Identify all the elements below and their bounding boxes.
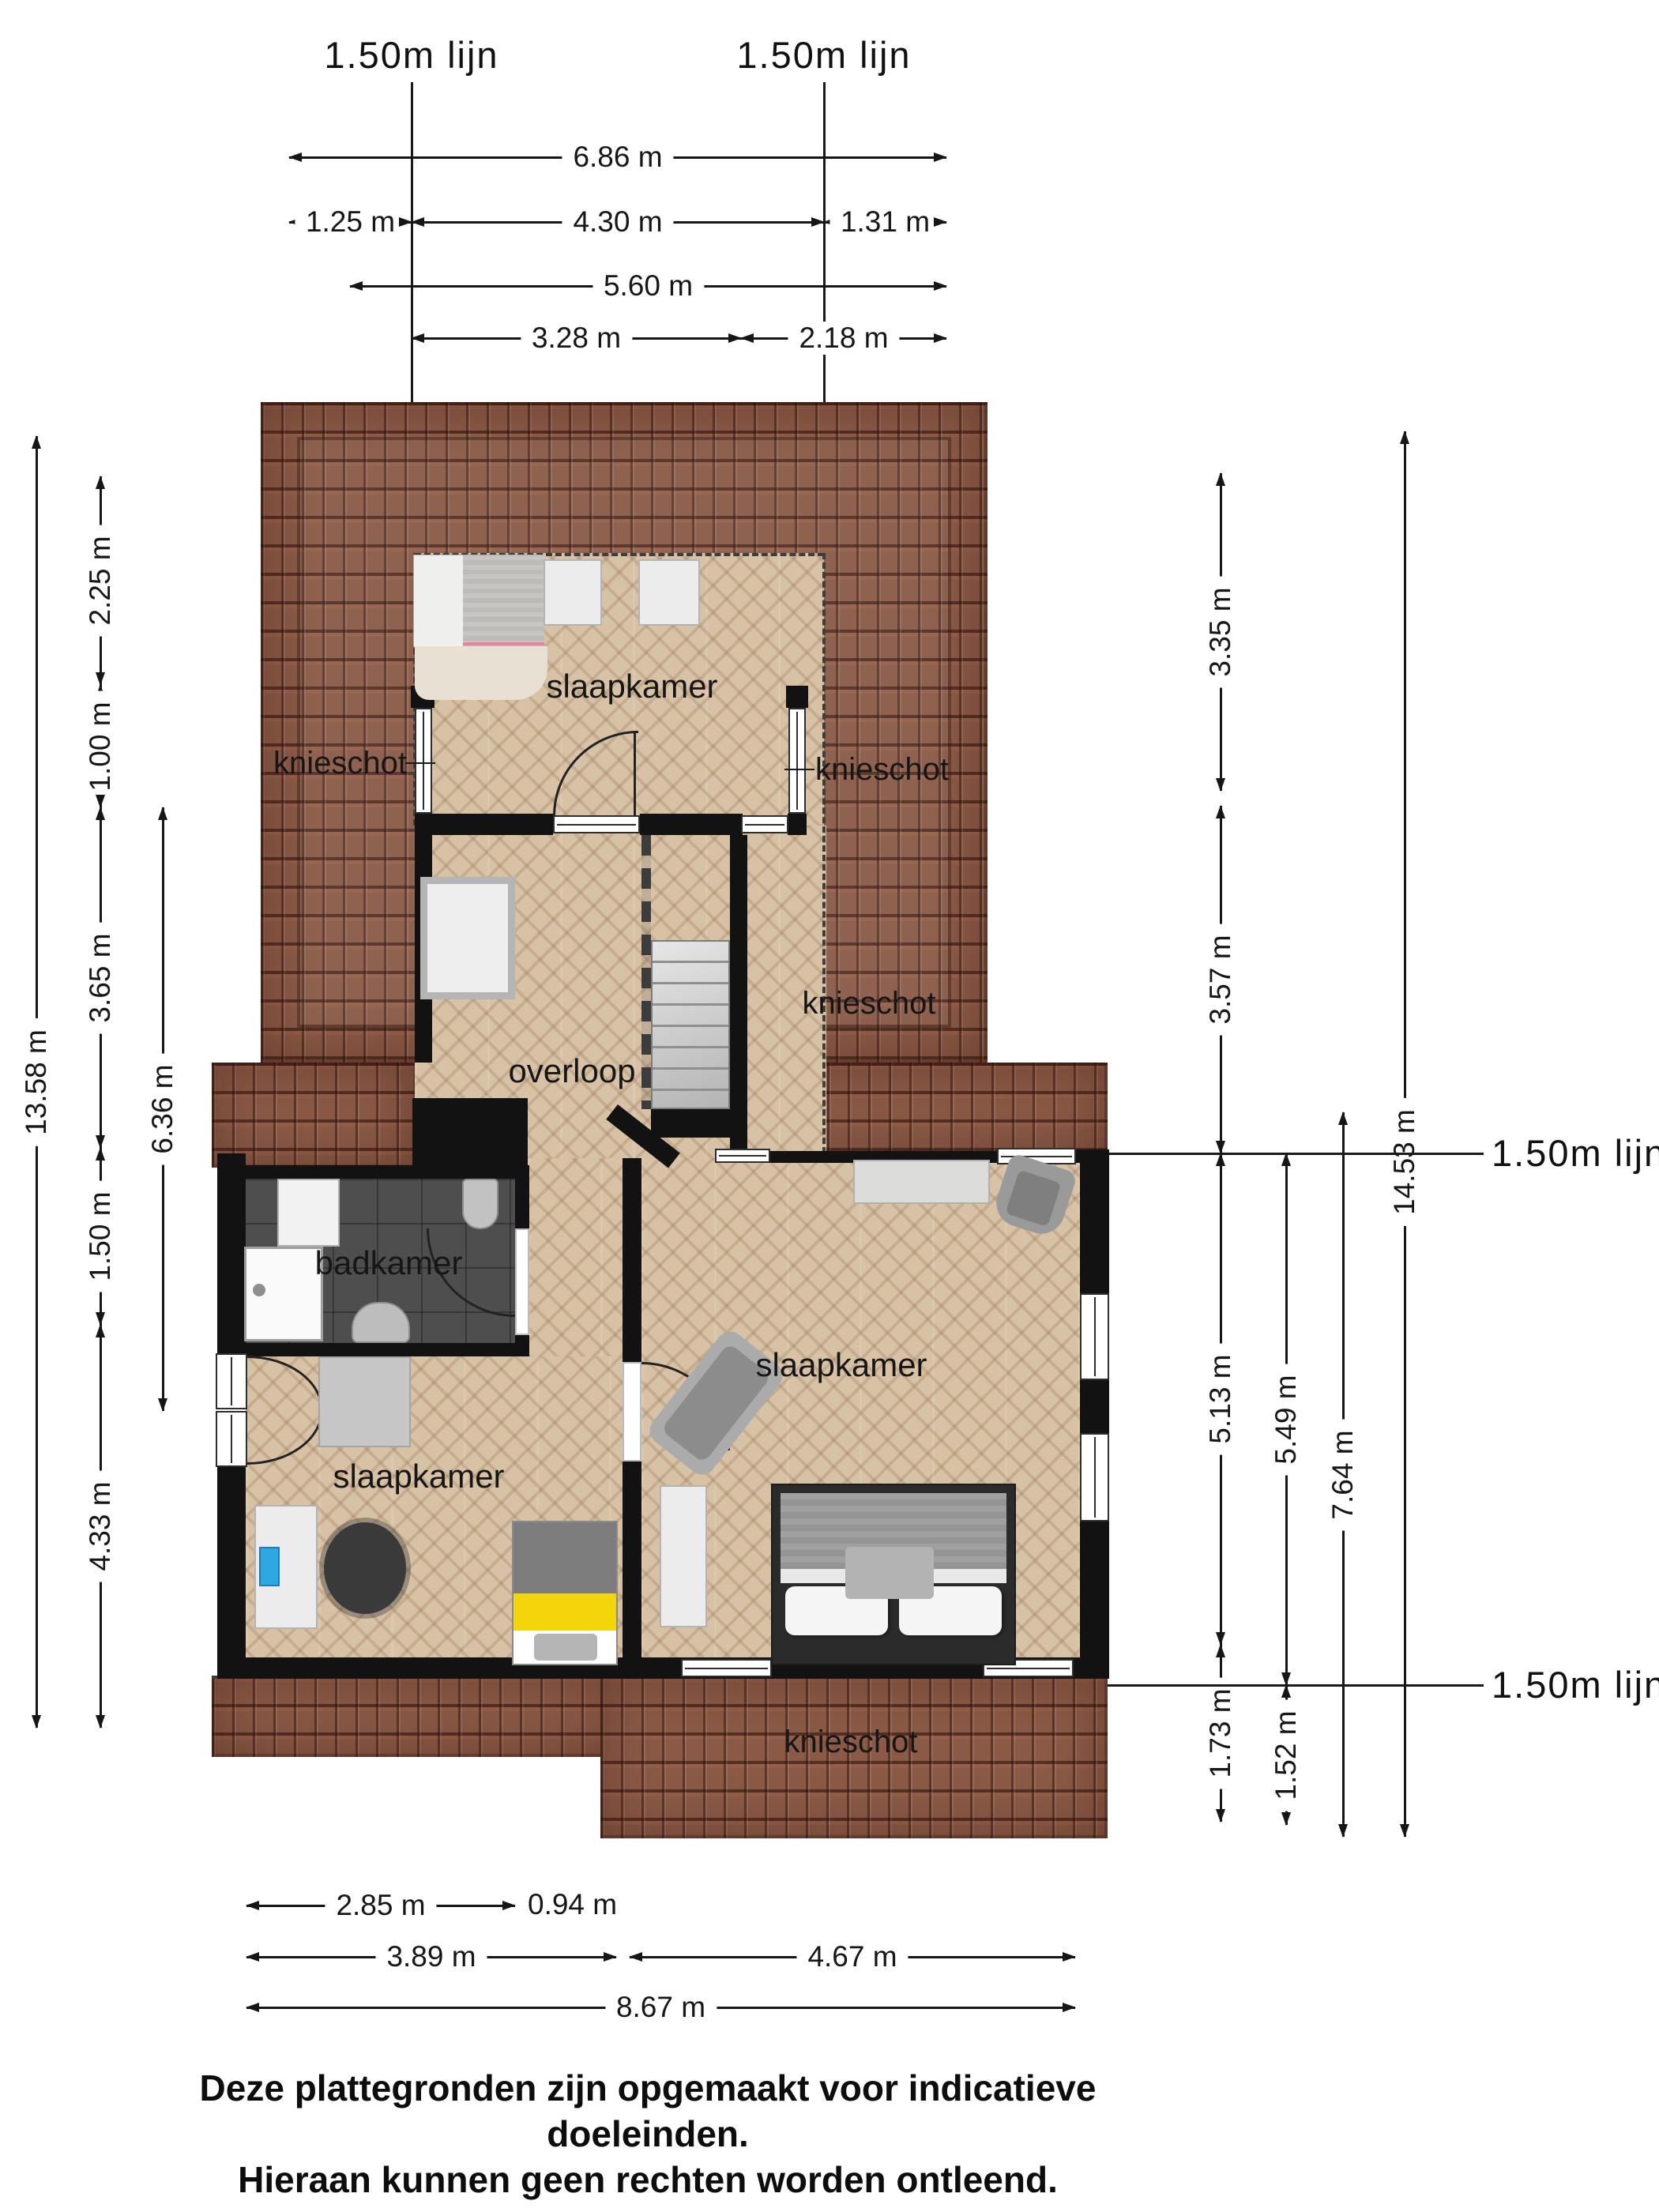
dim-label: 1.25 m <box>295 205 406 239</box>
roof-bottom-left <box>212 1676 621 1757</box>
window <box>788 708 806 814</box>
dim-label: 1.00 m <box>84 690 117 802</box>
dim-label: 6.36 m <box>146 1053 179 1164</box>
wall-bath-top <box>244 1165 515 1179</box>
dim-left-150: 1.50 m <box>100 1148 102 1325</box>
wall-stair-bottom <box>651 1109 747 1138</box>
bathroom-cabinet <box>277 1179 340 1247</box>
toilet <box>462 1179 498 1229</box>
wall-mid-upper <box>623 1158 641 1362</box>
bed-double <box>771 1484 1016 1665</box>
door-leaf <box>634 731 636 816</box>
dim-right-173: 1.73 m <box>1220 1645 1222 1822</box>
bed-cushion <box>845 1547 934 1599</box>
dim-label: 4.33 m <box>84 1470 117 1582</box>
bed-mattress <box>463 555 544 647</box>
sideboard <box>853 1160 990 1204</box>
dim-label: 1.52 m <box>1270 1699 1303 1811</box>
laptop <box>259 1547 280 1586</box>
dim-label: 3.35 m <box>1204 576 1237 687</box>
dim-label: 13.58 m <box>20 1018 53 1146</box>
dim-label: 14.53 m <box>1388 1098 1421 1226</box>
wall-bath-right-upper <box>515 1165 529 1228</box>
lijn-label-top-right: 1.50m lijn <box>666 33 982 77</box>
dim-right-total: 14.53 m <box>1404 431 1406 1837</box>
dresser <box>544 559 602 626</box>
leader-line <box>405 762 435 764</box>
dim-right-152: 1.52 m <box>1285 1685 1288 1825</box>
wall <box>788 814 807 835</box>
disclaimer-line-1: Deze plattegronden zijn opgemaakt voor i… <box>95 2065 1201 2157</box>
dim-label: 3.89 m <box>375 1940 487 1973</box>
label-kneewall-mid: knieschot <box>743 986 995 1021</box>
dim-label: 8.67 m <box>605 1991 717 2024</box>
dim-top-right: 1.31 m <box>824 221 946 224</box>
dim-label: 2.18 m <box>788 322 899 355</box>
dim-bottom-285: 2.85 m <box>246 1905 515 1907</box>
dim-label: 3.57 m <box>1204 924 1237 1035</box>
window <box>1080 1433 1109 1522</box>
dim-bottom-total: 8.67 m <box>246 2007 1075 2009</box>
wall-mid-lower <box>623 1461 641 1679</box>
disclaimer-line-2: Hieraan kunnen geen rechten worden ontle… <box>95 2157 1201 2203</box>
door-bathroom <box>515 1228 529 1335</box>
dim-bottom-094: 0.94 m <box>528 1888 617 1921</box>
dim-top-560: 5.60 m <box>350 285 946 288</box>
lijn-line-right-lower <box>1108 1684 1484 1687</box>
dresser <box>318 1356 411 1447</box>
wall <box>415 814 553 835</box>
window <box>681 1659 772 1677</box>
leader-line <box>784 769 814 770</box>
window <box>415 708 432 814</box>
wall <box>640 814 743 835</box>
dresser <box>638 559 700 626</box>
door-threshold <box>553 815 640 833</box>
label-kneewall-top-right: knieschot <box>815 752 949 788</box>
dim-right-357: 3.57 m <box>1220 806 1222 1153</box>
shower-drain <box>253 1284 265 1296</box>
door-corridor <box>623 1362 641 1461</box>
dim-label: 4.30 m <box>562 205 673 239</box>
dim-left-433: 4.33 m <box>100 1325 102 1728</box>
dim-top-mid: 4.30 m <box>412 221 824 224</box>
lijn-label-top-left: 1.50m lijn <box>254 33 570 77</box>
wall-exterior-right <box>1080 1158 1109 1679</box>
bed-pillow-strip <box>414 555 463 647</box>
window <box>741 815 788 833</box>
dim-top-218: 2.18 m <box>741 337 946 340</box>
dim-label: 5.49 m <box>1270 1364 1303 1475</box>
office-chair <box>324 1522 406 1614</box>
dim-top-total: 6.86 m <box>289 156 946 159</box>
dashed-right-boundary <box>822 553 826 1153</box>
cabinet <box>420 877 515 999</box>
wall-cap <box>1076 1149 1109 1163</box>
window <box>715 1149 770 1163</box>
bed-yellow-stripe <box>513 1593 616 1631</box>
dim-label: 3.65 m <box>84 922 117 1033</box>
dim-label: 1.73 m <box>1204 1677 1237 1789</box>
roof-left-bump <box>212 1063 416 1168</box>
dim-left-total: 13.58 m <box>36 436 38 1728</box>
dim-left-100: 1.00 m <box>100 685 102 807</box>
label-bathroom: badkamer <box>262 1244 515 1282</box>
label-landing: overloop <box>446 1052 698 1090</box>
dim-label: 1.50 m <box>84 1180 117 1292</box>
lijn-label-right-upper: 1.50m lijn <box>1492 1131 1659 1175</box>
label-bedroom-top: slaapkamer <box>506 668 758 705</box>
bed-top <box>413 555 544 646</box>
disclaimer: Deze plattegronden zijn opgemaakt voor i… <box>95 2065 1201 2203</box>
dim-bottom-467: 4.67 m <box>630 1956 1075 1958</box>
dim-left-225: 2.25 m <box>100 476 102 685</box>
dim-label: 2.85 m <box>325 1889 436 1922</box>
wall-bath-right-lower <box>515 1335 529 1356</box>
bed-pink-trim <box>463 642 544 645</box>
label-kneewall-top-left: knieschot <box>253 746 407 781</box>
dim-label: 6.86 m <box>562 141 673 174</box>
bed-foot-cushion <box>534 1634 597 1661</box>
floor-plan: 1.50m lijn 1.50m lijn 6.86 m 1.25 m 4.30… <box>0 0 1659 2212</box>
label-bedroom-left: slaapkamer <box>292 1458 545 1495</box>
dim-label: 4.67 m <box>796 1940 908 1973</box>
wall-exterior-left-lower <box>217 1467 246 1679</box>
dim-left-636: 6.36 m <box>162 807 164 1411</box>
dim-right-513: 5.13 m <box>1220 1153 1222 1645</box>
bed-single <box>512 1521 618 1665</box>
dim-left-365: 3.65 m <box>100 807 102 1148</box>
wardrobe <box>660 1485 707 1627</box>
dim-label: 3.28 m <box>521 322 632 355</box>
armchair-seat <box>1005 1170 1061 1227</box>
bed-blanket <box>513 1522 616 1593</box>
window <box>216 1353 247 1409</box>
wall-bath-bottom <box>237 1343 528 1356</box>
dim-top-328: 3.28 m <box>412 337 741 340</box>
dim-label: 5.13 m <box>1204 1343 1237 1454</box>
dim-label: 1.31 m <box>829 205 941 239</box>
dim-right-764: 7.64 m <box>1342 1112 1345 1837</box>
wall-cap <box>786 686 808 708</box>
wall-exterior-left-upper <box>217 1153 246 1353</box>
lijn-line-right-upper <box>1109 1153 1484 1155</box>
dim-label: 5.60 m <box>592 269 704 303</box>
floor-corridor <box>528 1158 623 1356</box>
lijn-line-top-left <box>411 82 413 402</box>
lijn-label-right-lower: 1.50m lijn <box>1492 1663 1659 1706</box>
window <box>1080 1293 1109 1380</box>
dim-label: 7.64 m <box>1326 1419 1360 1530</box>
label-bedroom-right: slaapkamer <box>715 1346 968 1384</box>
dim-label: 2.25 m <box>84 525 117 636</box>
dim-top-left: 1.25 m <box>289 221 412 224</box>
label-kneewall-bottom: knieschot <box>724 1725 977 1760</box>
dim-right-335: 3.35 m <box>1220 473 1222 791</box>
window <box>216 1411 247 1467</box>
dim-bottom-389: 3.89 m <box>246 1956 616 1958</box>
dim-right-549: 5.49 m <box>1285 1153 1288 1685</box>
